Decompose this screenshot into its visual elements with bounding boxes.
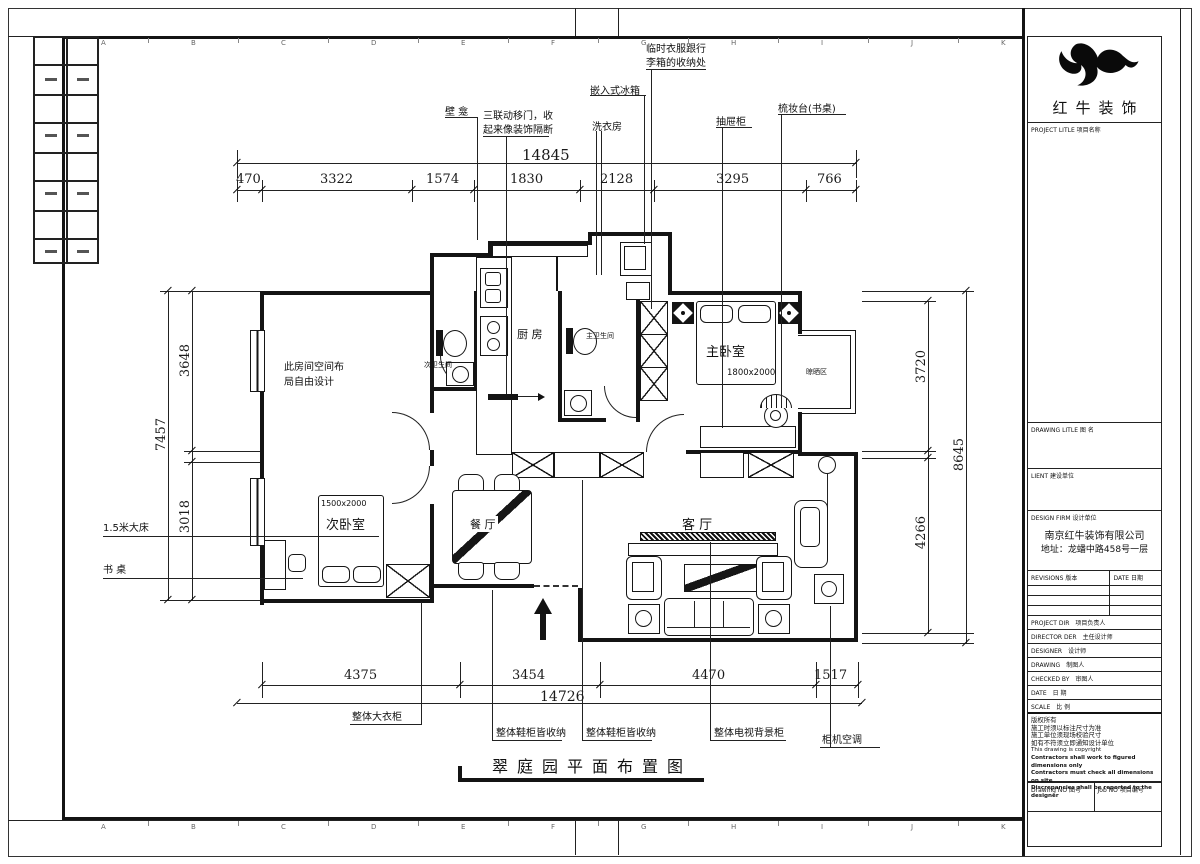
stove [480,316,508,356]
wall [558,291,562,422]
drawing-sheet: { "sheet": { "grid_top": ["A","B","C","D… [0,0,1200,864]
callout-leader [477,117,478,240]
entry-cabinet [700,452,744,478]
pillow [738,305,771,323]
row-label-en: DIRECTOR DER [1031,634,1077,641]
callout-label: 李箱的收纳处 [646,54,706,69]
entry-cabinet [600,452,644,478]
grid-letter: H [731,39,736,47]
dim-text: 4266 [914,516,929,549]
wardrobe [640,301,668,335]
grid-tick [418,38,419,43]
revision-cell [1028,586,1110,595]
entry-arrow-icon [534,598,552,614]
title-block-spacer [1028,812,1161,846]
sofa-divider [723,601,724,627]
room-label: 主卫生间 [586,331,614,341]
laundry-unit [626,282,650,300]
strip-row-line [35,94,97,96]
sofa-backline [667,627,750,628]
nightstand [672,302,694,324]
grid-letter: B [191,823,196,831]
entry-opening-dashed [534,585,578,587]
grid-tick [778,821,779,826]
note-line: Contractors must check all dimensions on… [1028,770,1161,785]
chaise-lounge [794,500,828,568]
row-label-en: SCALE [1031,704,1050,711]
revision-cell [1028,596,1110,605]
chaise-cushion [800,507,820,547]
wall [430,387,478,391]
tv-background-wall [640,532,776,541]
strip-mark [45,250,57,253]
kitchen-sink [480,268,508,308]
callout-underline [820,747,880,748]
callout-leader [421,602,422,724]
wash-basin [564,390,592,416]
callout-underline [710,740,786,741]
strip-mark [77,134,89,137]
sink-basin [485,272,501,286]
bed-size-label: 1800x2000 [727,368,775,378]
side-table [628,604,660,634]
callout-label: 整体电视背景柜 [714,724,784,739]
grid-tick [688,821,689,826]
grid-tick [598,38,599,43]
grid-letter: E [461,823,465,831]
grid-letter: A [101,39,106,47]
flex-room-note: 局自由设计 [284,373,334,388]
row-label-cn: 比 例 [1056,704,1070,711]
room-label: 餐 厅 [468,516,498,532]
dim-ext [160,600,260,601]
revisions-header: REVISIONS 版本 DATE 日期 [1028,571,1161,586]
dim-ext [856,150,857,178]
client-label: LIENT [1031,473,1048,480]
drawing-label-cn: 图 名 [1080,427,1094,434]
wall [578,638,858,642]
dining-chair [458,562,484,580]
row-label-en: PROJECT DIR [1031,620,1069,627]
room-label: 次卧室 [326,514,365,533]
pillow [700,305,733,323]
callout-label: 起来像装饰隔断 [483,121,553,136]
strip-row-line [35,64,97,66]
grid-tick [328,821,329,826]
strip-row-line [35,152,97,154]
project-dir-row: PROJECT DIR 项目负责人 [1028,616,1161,630]
dim-ext [856,180,857,202]
table-lamp [635,610,652,627]
scale-row: SCALE 比 例 [1028,700,1161,714]
callout-underline [350,724,422,725]
window [250,330,265,392]
callout-leader [103,536,379,537]
arrow-right-icon [538,393,545,401]
note-line: This drawing is copyright [1028,747,1161,755]
callout-leader [644,95,645,244]
checked-row: CHECKED BY 审图人 [1028,672,1161,686]
pillow [322,566,350,583]
frame-bottom [62,817,1022,820]
grid-tick [868,821,869,826]
sofa-divider [694,601,695,627]
dim-ext [862,291,974,292]
frame-top [62,36,1022,39]
table-lamp [765,610,782,627]
room-label: 厨 房 [517,326,543,342]
callout-label: 壁 龛 [445,103,468,118]
dim-ext [460,662,461,698]
dim-ext [806,180,807,202]
strip-row-line [35,122,97,124]
grid-letter: I [821,39,823,47]
dim-ext [580,180,581,202]
grid-tick [328,38,329,43]
strip-divider [66,38,68,262]
nightstand-dot [681,311,685,315]
dim-line [237,190,857,191]
plan-title: 翠庭园平面布置图 [492,753,692,777]
callout-underline [445,117,478,118]
dim-ext [858,662,859,698]
revision-row [1028,596,1161,606]
wall [854,452,858,642]
strip-mark [77,250,89,253]
dim-ext [600,662,601,698]
wardrobe [640,367,668,401]
strip-row-line [35,238,97,240]
grid-letter: J [911,823,913,831]
dim-text: 3720 [914,350,929,383]
firm-name: 南京红牛装饰有限公司 [1028,527,1161,542]
callout-leader [781,114,782,406]
project-label-cn: 项目名称 [1077,127,1101,134]
callout-underline [483,136,549,137]
bottom-divider-tick [618,820,619,855]
second-bed [318,495,384,587]
rednew-bull-logo-icon [1046,39,1142,91]
sofa [664,598,754,636]
callout-label: 1.5米大床 [103,519,149,534]
callout-leader [601,131,602,275]
top-divider-tick [575,8,576,36]
toilet-tank [566,328,573,354]
revision-cell [1028,606,1110,615]
dim-text: 1830 [510,172,543,187]
dim-text: 3018 [178,500,193,533]
dim-text: 3295 [716,172,749,187]
grid-letter: F [551,823,555,831]
dim-line [192,291,193,601]
callout-leader [506,136,507,394]
entry-cabinet [554,452,600,478]
wall [558,418,606,422]
dim-text: 3648 [178,344,193,377]
dim-text: 3322 [320,172,353,187]
toilet-tank [436,330,443,356]
grid-tick [238,821,239,826]
strip-mark [77,192,89,195]
dresser-cabinet [700,426,796,448]
basin-bowl [570,395,587,412]
frame-right [1022,8,1025,856]
grid-letter: B [191,39,196,47]
dim-ext [412,180,413,202]
dim-text: 1517 [814,668,847,683]
revision-strip [33,36,99,264]
grid-tick [508,38,509,43]
callout-label: 整体鞋柜皆收纳 [586,724,656,739]
firm-label: DESIGN FIRM [1031,515,1071,522]
coffee-table [684,564,758,592]
wall [430,253,434,295]
fridge-inner [624,246,646,270]
burner [487,321,500,334]
project-label: PROJECT LITLE [1031,127,1075,134]
dim-ext [184,462,260,463]
logo-section: 红牛装饰 [1028,37,1161,123]
grid-letter: D [371,823,376,831]
entry-arrow-stem [540,614,546,640]
note-line: Discrepancies shall be reported to the d… [1028,785,1161,800]
basin-bowl [452,366,469,383]
wardrobe [640,334,668,368]
entry-cabinet [512,452,554,478]
armchair-seat [632,562,654,592]
dim-text: 7457 [154,418,169,451]
date-row: DATE 日 期 [1028,686,1161,700]
grid-letter: E [461,39,465,47]
revision-row [1028,606,1161,616]
copyright-notes: 版权所有 施工时须以标注尺寸为准 施工单位须现场校验尺寸 如有不符须立即通知设计… [1028,714,1161,782]
armchair [626,556,662,600]
burner [487,338,500,351]
grid-tick [148,38,149,43]
dim-ext [262,180,263,202]
ac-fan [821,581,837,597]
room-label: 次卫生间 [424,360,452,370]
row-label-cn: 项目负责人 [1075,620,1105,627]
logo-text: 红牛装饰 [1028,97,1161,118]
room-label: 主卧室 [706,341,745,360]
dim-ext [862,633,974,634]
grid-letter: F [551,39,555,47]
dim-text: 8645 [952,438,967,471]
director-row: DIRECTOR DER 主任设计师 [1028,630,1161,644]
strip-row-line [35,180,97,182]
row-label-en: DRAWING [1031,662,1060,669]
dining-chair [494,562,520,580]
grid-tick [508,821,509,826]
row-label-en: CHECKED BY [1031,676,1069,683]
dim-ext [654,180,655,202]
wall [260,291,432,295]
callout-label: 整体鞋柜皆收纳 [496,724,566,739]
dim-text: 2128 [600,172,633,187]
dim-ext [262,662,263,698]
bottom-divider-tick [575,820,576,855]
callout-underline [778,114,846,115]
grid-tick [958,821,959,826]
drawing-label: DRAWING LITLE [1031,427,1078,434]
tv-cabinet [628,543,778,556]
wall [798,412,802,456]
grid-letter: A [101,823,106,831]
sliding-door-arrow-line [518,396,538,397]
wall [668,232,672,295]
sliding-door [488,394,518,400]
callout-label: 抽屉柜 [716,113,746,128]
callout-leader [596,131,597,275]
dim-ext [184,451,260,452]
sink-basin [485,289,501,303]
grid-tick [598,821,599,826]
project-title-field: PROJECT LITLE 项目名称 [1028,123,1161,423]
side-table [758,604,790,634]
grid-letter: H [731,823,736,831]
design-firm-field: DESIGN FIRM 设计单位 南京红牛装饰有限公司 地址：龙蟠中路458号一… [1028,511,1161,571]
wardrobe [748,452,794,478]
armchair [756,556,792,600]
grid-letter: G [641,823,646,831]
callout-underline [582,740,652,741]
callout-leader [492,590,493,740]
strip-row-line [35,210,97,212]
drawing-row: DRAWING 制图人 [1028,658,1161,672]
desk-chair [288,554,306,572]
grid-tick [868,38,869,43]
row-label-cn: 审图人 [1075,676,1093,683]
strip-mark [77,78,89,81]
grid-tick [958,38,959,43]
callout-label: 临时衣服跟行 [646,40,706,55]
armchair-seat [762,562,784,592]
title-block: 红牛装饰 PROJECT LITLE 项目名称 DRAWING LITLE 图 … [1027,36,1162,847]
callout-label: 三联动移门，收 [483,107,553,122]
grid-letter: K [1001,39,1006,47]
callout-label: 整体大衣柜 [352,708,402,723]
ac-symbol [818,456,836,474]
grid-letter: C [281,39,286,47]
bed-size-label: 1500x2000 [321,499,366,508]
sheet-edge-line [1180,8,1181,855]
wardrobe [386,564,430,598]
room-label: 客 厅 [682,514,712,533]
grid-tick [418,821,419,826]
room-label: 晾晒区 [806,367,827,377]
nightstand-dot [787,311,791,315]
dim-line [262,685,858,686]
wall [430,584,534,588]
flex-room-note: 此房间空间布 [284,358,344,373]
fridge [620,242,652,276]
top-divider-tick [618,8,619,36]
grid-letter: K [1001,823,1006,831]
dim-ext [160,291,260,292]
grid-tick [148,821,149,826]
wall [260,599,434,603]
revisions-label: REVISIONS 版本 [1028,571,1110,585]
callout-label: 柜机空调 [822,731,862,746]
grid-tick [778,38,779,43]
client-field: LIENT 建设单位 [1028,469,1161,511]
dim-text: 4470 [692,668,725,683]
revision-row [1028,586,1161,596]
row-label-cn: 主任设计师 [1083,634,1113,641]
dim-text: 3454 [512,668,545,683]
dim-text: 470 [236,172,261,187]
grid-letter: J [911,39,913,47]
designer-row: DESIGNER 设计师 [1028,644,1161,658]
grid-letter: C [281,823,286,831]
toilet-bowl [443,330,467,357]
wall [430,291,434,413]
dim-text: 1574 [426,172,459,187]
callout-underline [492,740,562,741]
wall [430,504,434,603]
row-label-en: DESIGNER [1031,648,1062,655]
firm-label-cn: 设计单位 [1073,515,1097,522]
row-label-cn: 制图人 [1066,662,1084,669]
pillow [353,566,381,583]
date-col-label: DATE 日期 [1110,571,1146,585]
callout-label: 梳妆台(书桌) [778,100,836,115]
strip-mark [45,192,57,195]
dim-text: 766 [817,172,842,187]
callout-underline [590,95,646,96]
callout-underline [646,69,706,70]
strip-mark [45,78,57,81]
callout-leader [710,542,711,740]
client-label-cn: 建设单位 [1050,473,1074,480]
drawing-title-field: DRAWING LITLE 图 名 [1028,423,1161,469]
grid-letter: I [821,823,823,831]
strip-mark [45,134,57,137]
row-label-cn: 日 期 [1053,690,1067,697]
bottom-rule [8,820,1022,821]
firm-address: 地址：龙蟠中路458号一层 [1028,542,1161,555]
wall [430,450,434,466]
callout-leader [103,578,303,579]
grid-letter: D [371,39,376,47]
row-label-cn: 设计师 [1068,648,1086,655]
dim-text: 4375 [344,668,377,683]
note-line: 如有不符须立即通知设计单位 [1028,740,1161,748]
row-label-en: DATE [1031,690,1047,697]
desk [264,540,286,590]
callout-label: 书 桌 [103,561,126,576]
floor-ac-unit [814,574,844,604]
dim-text: 14726 [540,689,585,705]
dim-ext [474,180,475,202]
plan-title-underline [458,778,704,782]
note-line: Contractors shall work to figured dimens… [1028,755,1161,770]
grid-tick [238,38,239,43]
dim-ext [862,643,974,644]
dresser-stool-inner [770,410,781,421]
dim-text: 14845 [522,146,570,164]
